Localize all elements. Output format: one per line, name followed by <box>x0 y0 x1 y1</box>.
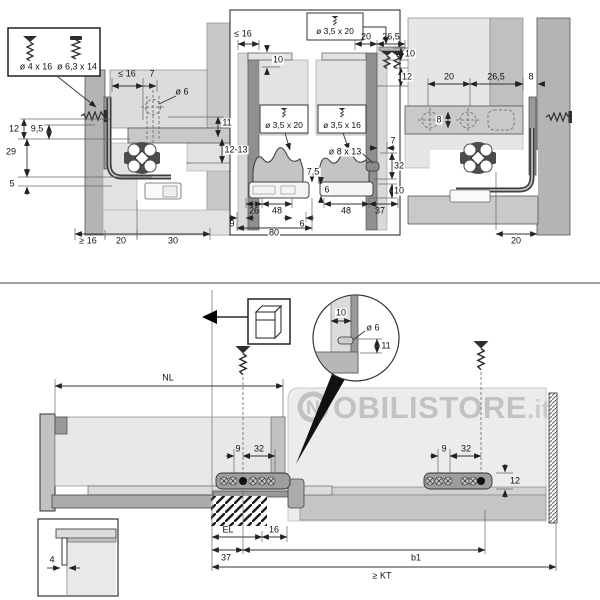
installation-diagram: .dl{stroke:#333;stroke-width:0.9;fill:no… <box>0 0 600 600</box>
dim-raill-9: 9 <box>235 445 240 454</box>
dim-kt: ≥ KT <box>373 572 392 581</box>
dim-r-b20: 20 <box>511 237 521 246</box>
cabinet-icon <box>256 306 281 338</box>
dim-midl-26: 26 <box>249 207 259 216</box>
dim-mid-26-5: 26,5 <box>382 33 400 42</box>
dim-midl-80: 80 <box>268 229 280 238</box>
screw-label-top: ø 3,5 x 20 <box>316 27 354 36</box>
screw-label-right: ø 3,5 x 16 <box>323 121 361 130</box>
dim-11: 11 <box>221 119 232 128</box>
watermark-tld: .it <box>527 394 550 424</box>
dim-gap-4: 4 <box>49 556 54 565</box>
dim-railr-32: 32 <box>461 445 471 454</box>
mounting-rail-right <box>424 473 492 489</box>
dim-nl: NL <box>162 374 174 383</box>
dim-r-26-5: 26,5 <box>487 73 505 82</box>
dim-midr-10: 10 <box>393 187 405 196</box>
watermark-text: OBILISTORE <box>333 390 527 425</box>
dim-det-11: 11 <box>380 342 391 351</box>
bottom-side-view: N OBILISTORE .it <box>38 290 557 596</box>
dim-30: 30 <box>168 237 178 246</box>
dim-12: 12 <box>9 125 19 134</box>
dim-midr-37: 37 <box>375 207 385 216</box>
dim-20: 20 <box>116 237 126 246</box>
dim-7: 7 <box>149 70 154 79</box>
dim-panel-max: ≤ 16 <box>118 70 135 79</box>
dim-det-dia6: ø 6 <box>365 324 380 333</box>
top-right-section-view <box>405 18 572 235</box>
dim-16: 16 <box>269 526 279 535</box>
dim-mid-12: 12 <box>401 73 413 82</box>
dim-mid-20: 20 <box>361 33 371 42</box>
dim-el: EL <box>222 526 233 535</box>
watermark: N OBILISTORE .it <box>300 390 550 425</box>
dim-midl-10: 10 <box>272 56 284 65</box>
dim-b1: b1 <box>411 554 421 563</box>
dim-r-8: 8 <box>528 73 533 82</box>
cabinet-back-panel <box>549 393 557 523</box>
dim-railr-12: 12 <box>510 477 520 486</box>
dim-r-hole8: 8 <box>435 116 442 125</box>
dim-midr-6: 6 <box>323 186 330 195</box>
dowel <box>366 162 379 171</box>
screw1-label: ø 4 x 16 <box>20 63 53 72</box>
dim-back-min: ≥ 16 <box>79 237 96 246</box>
screw-label-left: ø 3,5 x 20 <box>265 121 303 130</box>
dim-midl-7-5: 7,5 <box>306 168 321 177</box>
dim-midl-48: 48 <box>272 207 282 216</box>
mounting-screw-icon <box>236 346 251 375</box>
dim-railr-9: 9 <box>441 445 446 454</box>
dowel-label: ø 8 x 13 <box>328 148 363 157</box>
dim-midl-6: 6 <box>299 220 304 229</box>
dim-37: 37 <box>221 554 231 563</box>
dim-29: 29 <box>6 148 16 157</box>
drawer-rail <box>52 495 213 508</box>
dim-midl-9: 9 <box>229 220 234 229</box>
dim-midr-32: 32 <box>393 162 405 171</box>
dim-midr-48: 48 <box>341 207 351 216</box>
front-edge-arrow <box>202 310 217 324</box>
screw2-label: ø 6,3 x 14 <box>57 63 97 72</box>
dim-9-5: 9,5 <box>31 125 44 134</box>
diagram-linework: .dl{stroke:#333;stroke-width:0.9;fill:no… <box>0 0 600 600</box>
dim-5: 5 <box>9 180 14 189</box>
mounting-rail-left <box>216 473 290 489</box>
dim-midl-max16: ≤ 16 <box>234 30 251 39</box>
mounting-screw-icon <box>474 341 489 370</box>
dim-det-10: 10 <box>335 309 347 318</box>
dim-r-20: 20 <box>444 73 454 82</box>
cabinet-icon-box <box>248 299 290 344</box>
rear-fixing-detail-box <box>229 10 408 235</box>
dim-12-13: 12-13 <box>223 146 248 155</box>
dim-hole-dia: ø 6 <box>175 88 188 97</box>
dim-raill-32: 32 <box>254 445 264 454</box>
dim-mid-10: 10 <box>404 50 416 59</box>
cabinet-front-hatch <box>211 496 267 526</box>
dim-midr-7: 7 <box>389 137 396 146</box>
